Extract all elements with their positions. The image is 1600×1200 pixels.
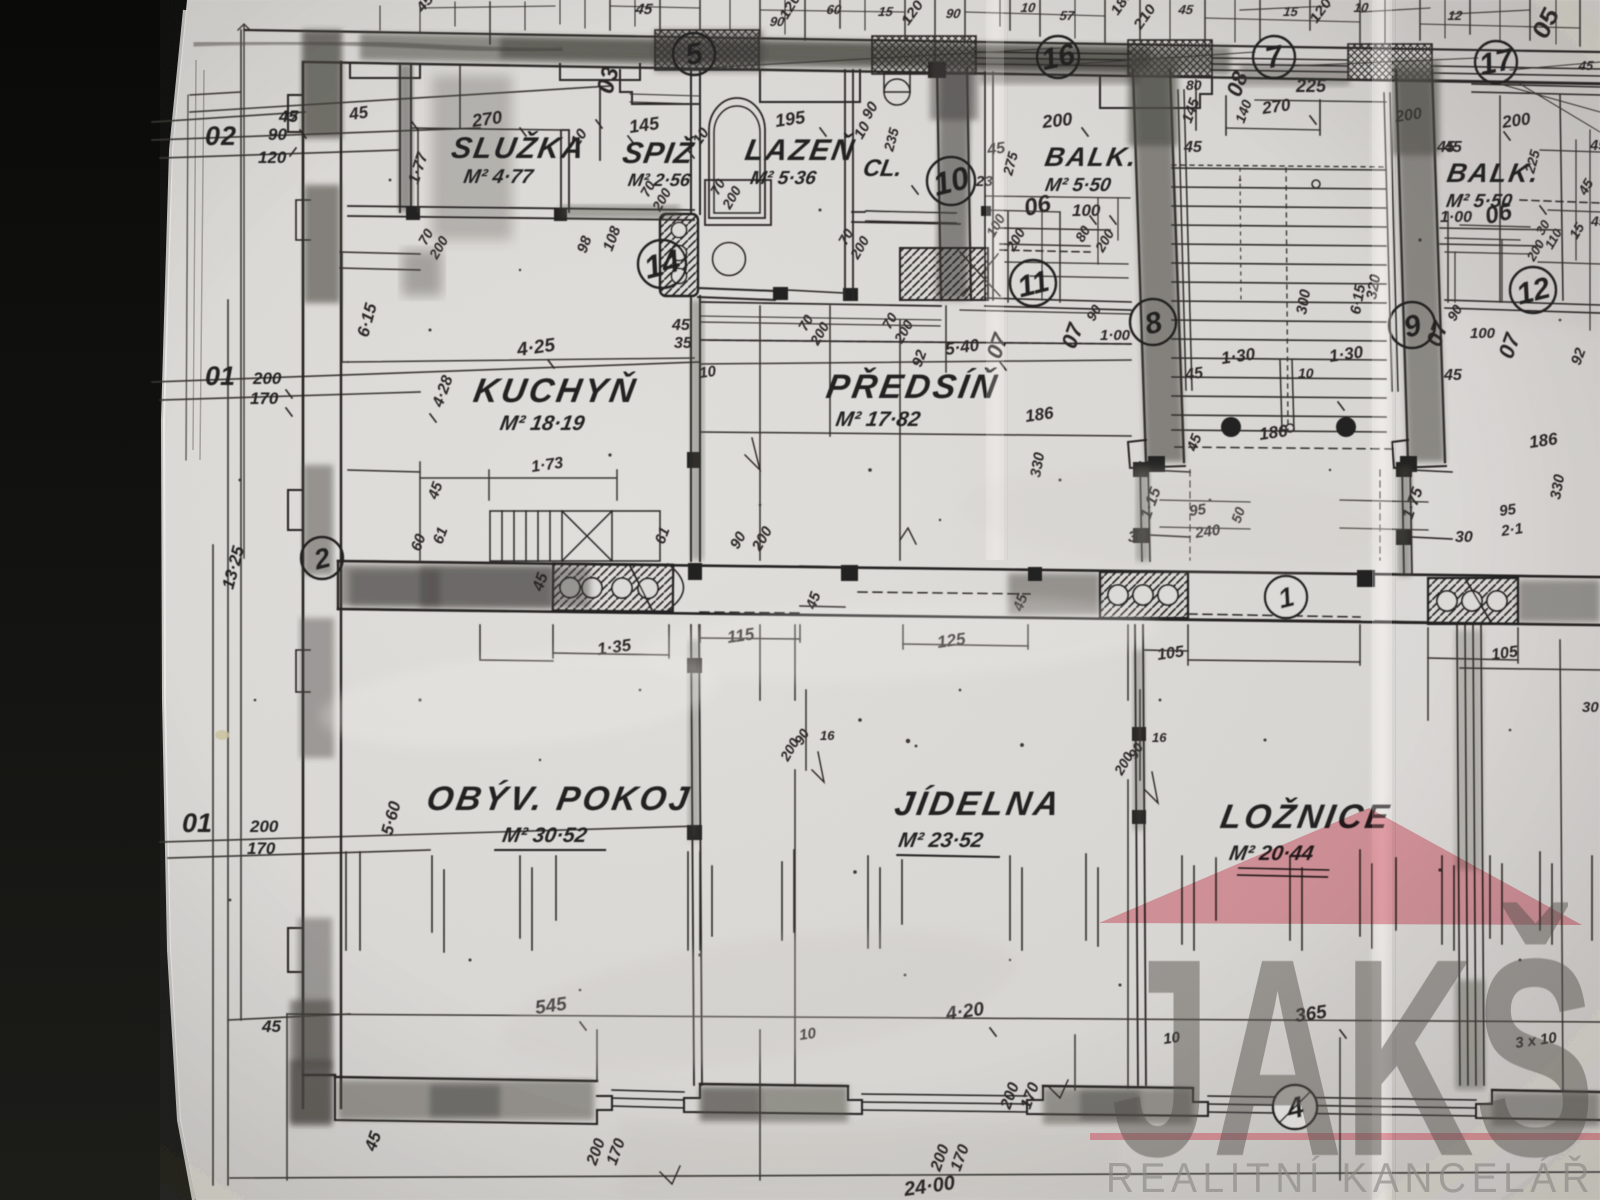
svg-text:M² 18·19: M² 18·19 <box>498 412 586 435</box>
svg-text:BALK.: BALK. <box>1043 141 1141 172</box>
svg-text:M² 4·77: M² 4·77 <box>462 166 535 188</box>
svg-text:JÍDELNA: JÍDELNA <box>892 784 1065 823</box>
svg-text:M² 5·50: M² 5·50 <box>1043 175 1112 196</box>
svg-text:M² 17·82: M² 17·82 <box>834 408 922 431</box>
svg-text:SLUŽKA: SLUŽKA <box>449 131 589 165</box>
svg-text:KUCHYŇ: KUCHYŇ <box>471 370 641 410</box>
svg-text:OBÝV. POKOJ: OBÝV. POKOJ <box>424 779 695 818</box>
svg-text:LAZEŇ: LAZEŇ <box>743 133 859 167</box>
svg-text:PŘEDSÍŇ: PŘEDSÍŇ <box>823 366 1002 406</box>
svg-text:M² 5·50: M² 5·50 <box>1445 191 1514 212</box>
svg-text:16: 16 <box>1038 38 1078 77</box>
svg-text:BALK.: BALK. <box>1445 157 1543 188</box>
svg-text:M² 23·52: M² 23·52 <box>897 829 985 852</box>
svg-text:M² 5·36: M² 5·36 <box>749 168 818 189</box>
svg-text:REALITNÍ KANCELÁŘ: REALITNÍ KANCELÁŘ <box>1106 1154 1595 1200</box>
svg-text:M² 2·56: M² 2·56 <box>627 170 693 190</box>
svg-text:CL.: CL. <box>861 155 904 182</box>
svg-text:SPIŽ: SPIŽ <box>620 136 697 170</box>
svg-text:M² 30·52: M² 30·52 <box>501 824 589 847</box>
